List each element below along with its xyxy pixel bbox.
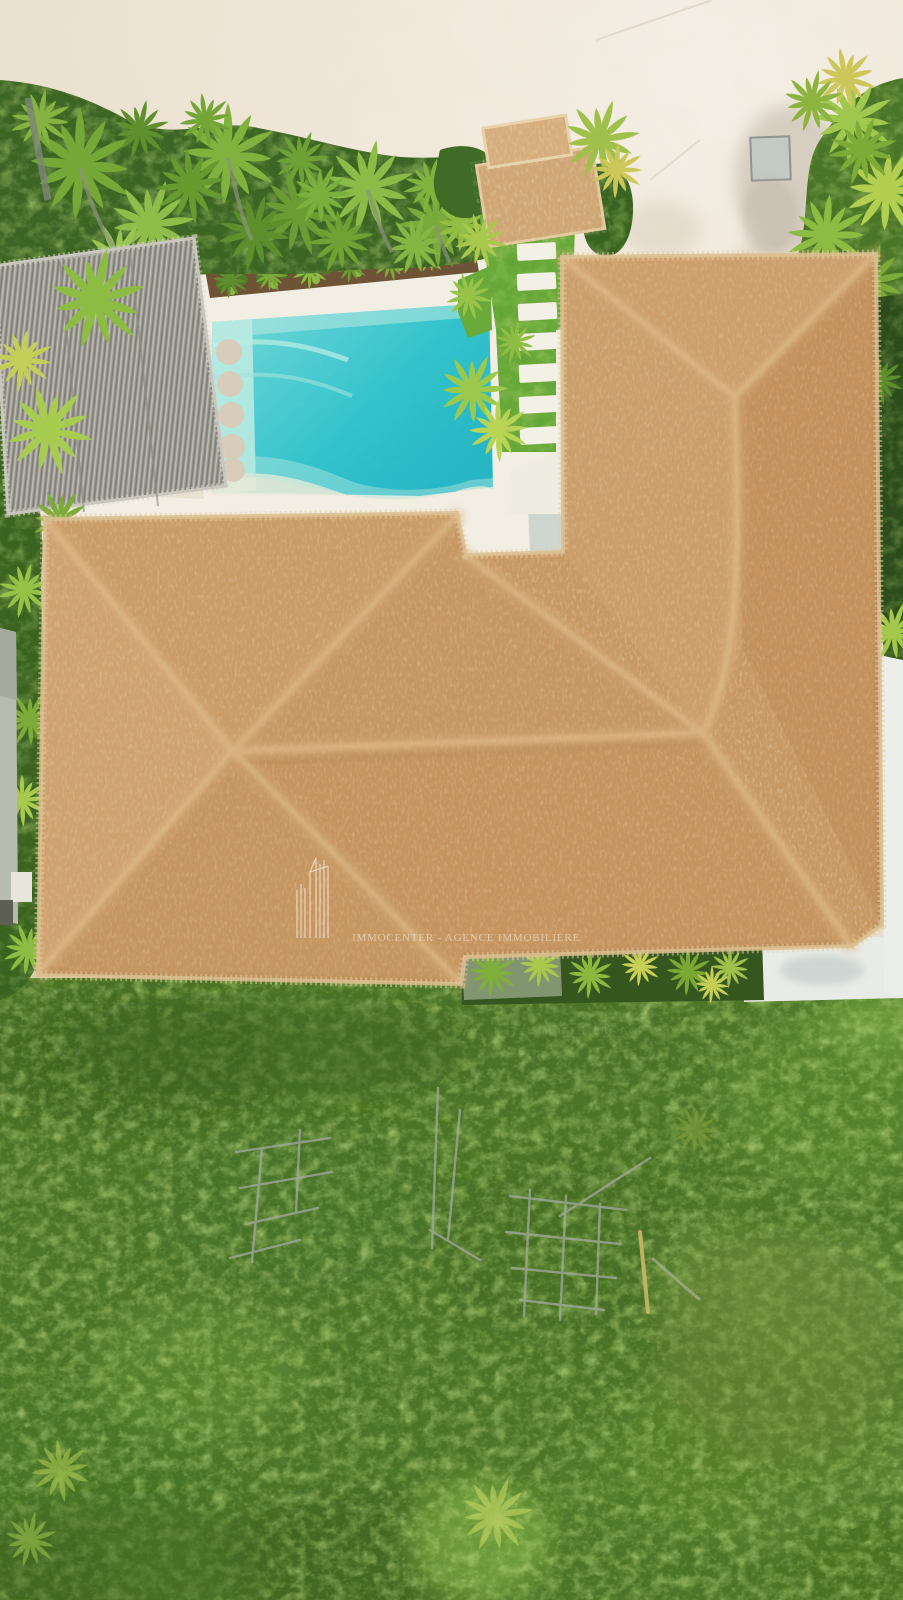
svg-text:IMMOCENTER - AGE: IMMOCENTER - AGE bbox=[527, 1025, 645, 1037]
svg-text:IMMOCENTER - AGENCE IMMOBILIÈR: IMMOCENTER - AGENCE IMMOBILIÈRE bbox=[352, 932, 580, 944]
